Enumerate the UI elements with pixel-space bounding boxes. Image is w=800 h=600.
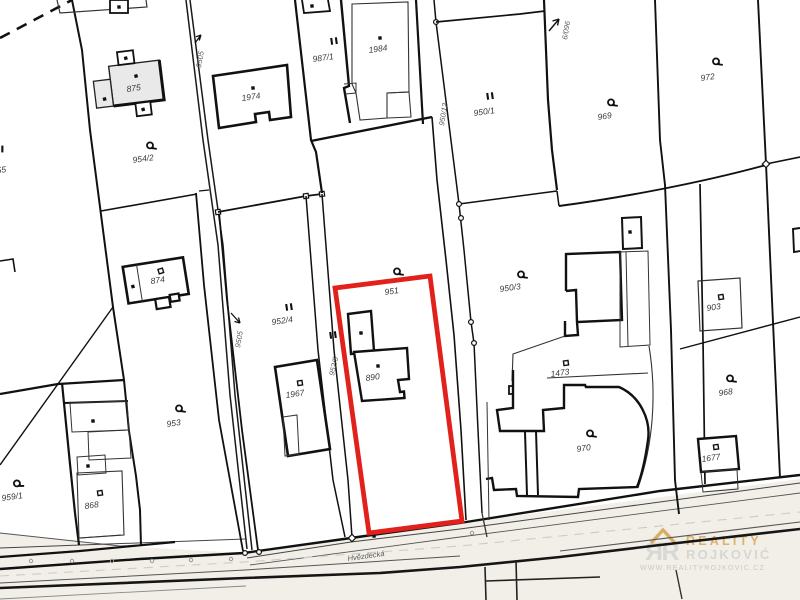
svg-text:868: 868 — [84, 499, 100, 511]
svg-text:969: 969 — [597, 110, 613, 122]
svg-text:890: 890 — [365, 371, 381, 383]
svg-text:968: 968 — [718, 386, 734, 398]
svg-text:875: 875 — [126, 82, 142, 94]
svg-text:972: 972 — [700, 71, 716, 83]
svg-text:903: 903 — [706, 301, 722, 313]
svg-text:953: 953 — [166, 417, 182, 429]
svg-text:951: 951 — [384, 285, 400, 297]
svg-text:874: 874 — [150, 274, 166, 286]
svg-text:970: 970 — [576, 442, 592, 454]
svg-text:ROJKOVIĆ: ROJKOVIĆ — [686, 547, 772, 562]
svg-text:WWW.REALITYROJKOVIC.CZ: WWW.REALITYROJKOVIC.CZ — [640, 565, 765, 572]
